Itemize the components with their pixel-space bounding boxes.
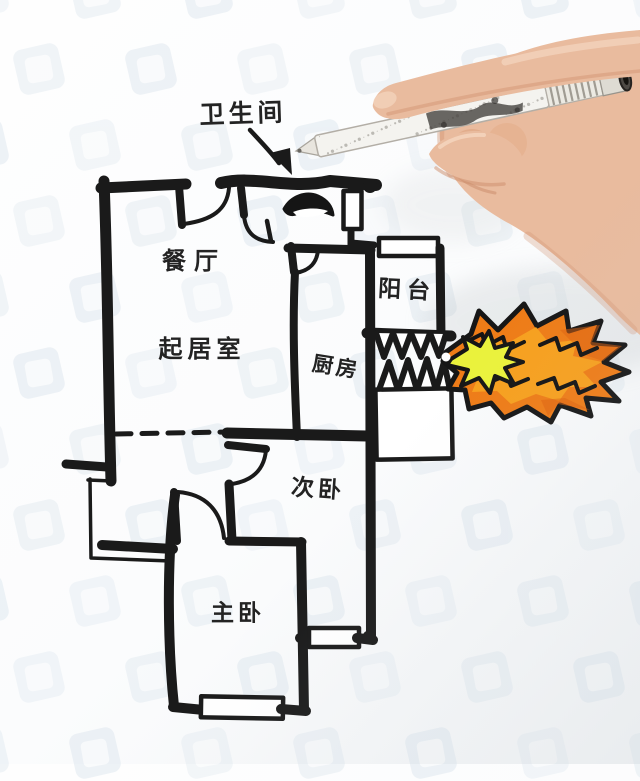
label-balcony: 阳台 [377, 275, 436, 305]
master-window [201, 696, 283, 718]
bedroom2-door-arc [232, 450, 266, 484]
flame-source-hotspot [442, 353, 451, 362]
wall-bathroom-left [241, 188, 244, 215]
wall-corner-blob [363, 631, 376, 644]
kitchen-window-teeth-bottom [379, 359, 450, 390]
wall-bedroom2-left [229, 484, 232, 540]
label-dining: 餐厅 [162, 247, 226, 275]
wall-left-outer [104, 181, 111, 481]
bathroom-right-door [344, 191, 362, 229]
label-bathroom: 卫生间 [199, 97, 287, 129]
floorplan-drawing-scene: 卫生间 餐厅 起居室 阳台 厨房 次卧 主卧 [0, 0, 640, 764]
label-master: 主卧 [211, 601, 265, 627]
wall-elbow-to-balcony [351, 243, 374, 245]
label-bedroom2: 次卧 [290, 474, 346, 505]
balcony-window [379, 238, 438, 256]
dining-door-leaf [179, 186, 182, 225]
wall-kitchen-top [288, 248, 371, 250]
wall-kitchen-left [294, 272, 297, 437]
callout-arrowhead [270, 148, 292, 175]
wall-top-left [101, 184, 186, 188]
wall-bathroom-top [221, 181, 376, 185]
wall-master-right [301, 542, 304, 710]
wall-master-bottom-b [281, 709, 306, 711]
wall-master-top [229, 541, 302, 542]
photo-of-hand-drawn-floorplan: { "labels": { "bathroom_callout": "卫生间",… [0, 0, 640, 764]
bedroom2-door-leaf [228, 445, 266, 449]
kitchen-window-teeth-top [376, 333, 446, 357]
dining-door-arc [184, 188, 229, 224]
master-door-arc [178, 492, 224, 538]
kitchen-door-arc [295, 250, 318, 273]
label-kitchen: 厨房 [311, 351, 362, 382]
label-living: 起居室 [158, 335, 246, 363]
bedroom2-window [309, 628, 359, 647]
bathroom-door-leaf [267, 221, 271, 241]
callout-arrow-line [250, 130, 279, 163]
wall-master-left [169, 495, 175, 706]
wall-right-outer [370, 252, 371, 636]
wall-corner-blob [363, 179, 377, 193]
kitchen-sill-box [375, 388, 452, 459]
wall-stub-left [66, 464, 107, 467]
wall-balcony-right [440, 248, 441, 338]
dashed-partition [116, 432, 225, 434]
wall-living-bottom [102, 545, 173, 549]
kitchen-door-leaf [291, 246, 294, 272]
annex-thin-top [88, 480, 112, 481]
wall-bedroom2-top [227, 433, 367, 436]
